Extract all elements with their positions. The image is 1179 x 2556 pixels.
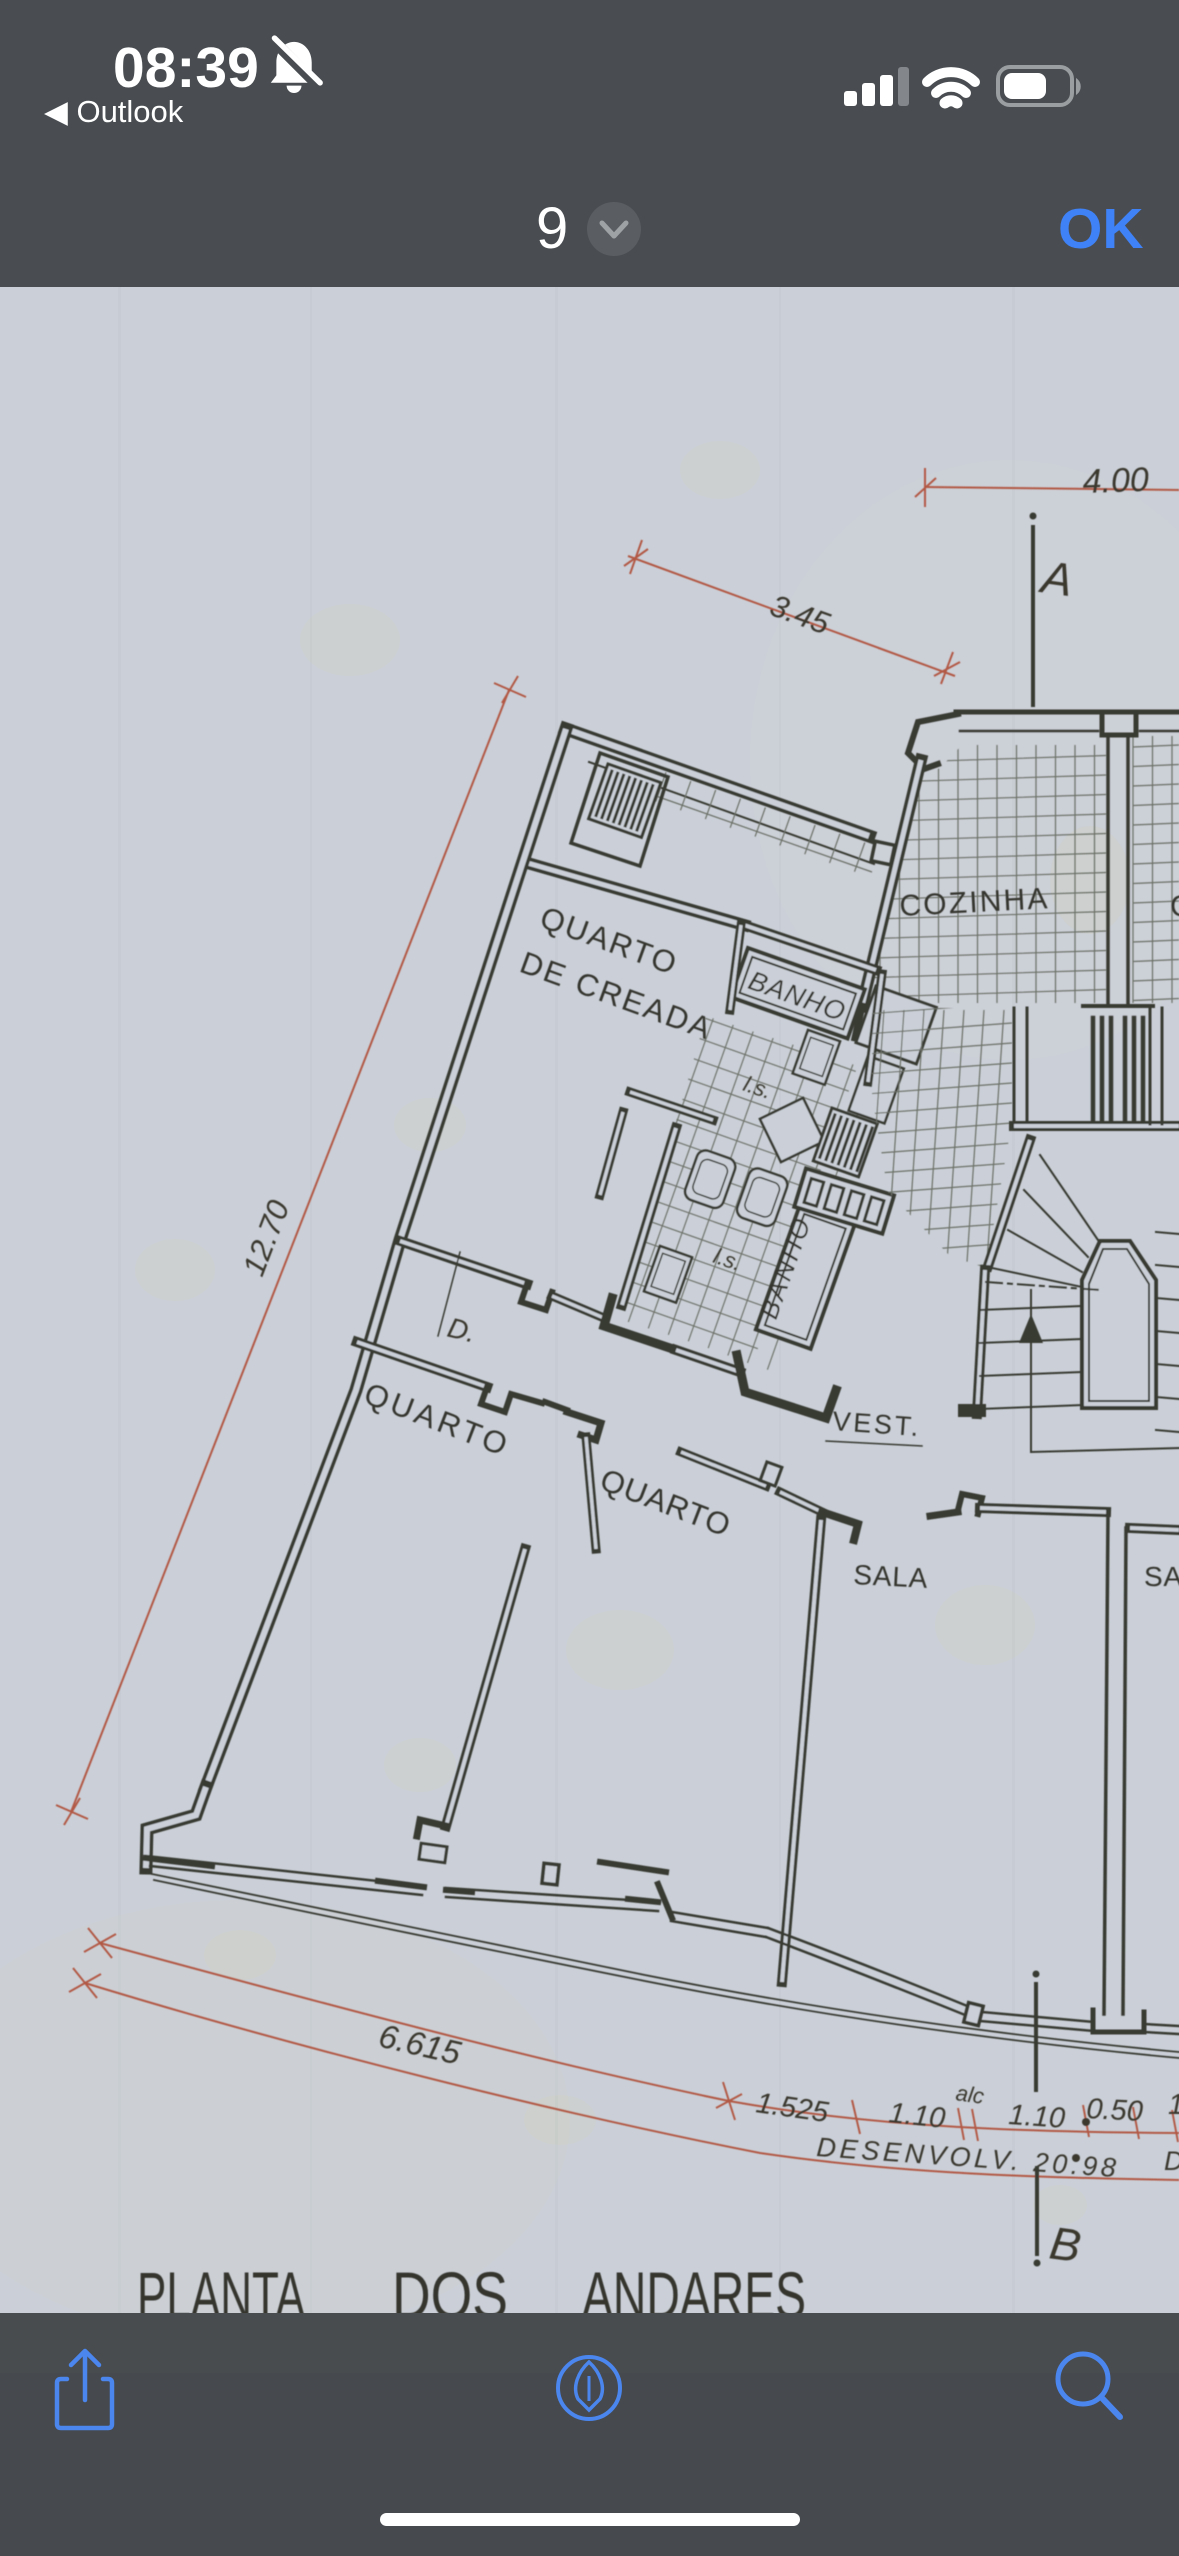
svg-text:1.10: 1.10	[1008, 2099, 1067, 2135]
svg-text:0.50: 0.50	[1086, 2093, 1144, 2128]
svg-text:◀ Outlook: ◀ Outlook	[44, 94, 184, 129]
svg-text:9: 9	[536, 196, 568, 261]
svg-text:OK: OK	[1058, 197, 1144, 261]
svg-text:D: D	[1164, 2146, 1179, 2176]
svg-text:SA: SA	[1144, 1561, 1179, 1592]
svg-text:SALA: SALA	[853, 1559, 929, 1594]
svg-text:C: C	[1170, 890, 1179, 923]
svg-text:08:39: 08:39	[113, 36, 259, 100]
svg-text:VEST.: VEST.	[832, 1406, 920, 1442]
svg-text:4.00: 4.00	[1082, 461, 1150, 501]
svg-text:1.10: 1.10	[887, 2097, 946, 2135]
svg-text:1: 1	[1168, 2089, 1179, 2121]
svg-text:alc: alc	[954, 2080, 985, 2109]
